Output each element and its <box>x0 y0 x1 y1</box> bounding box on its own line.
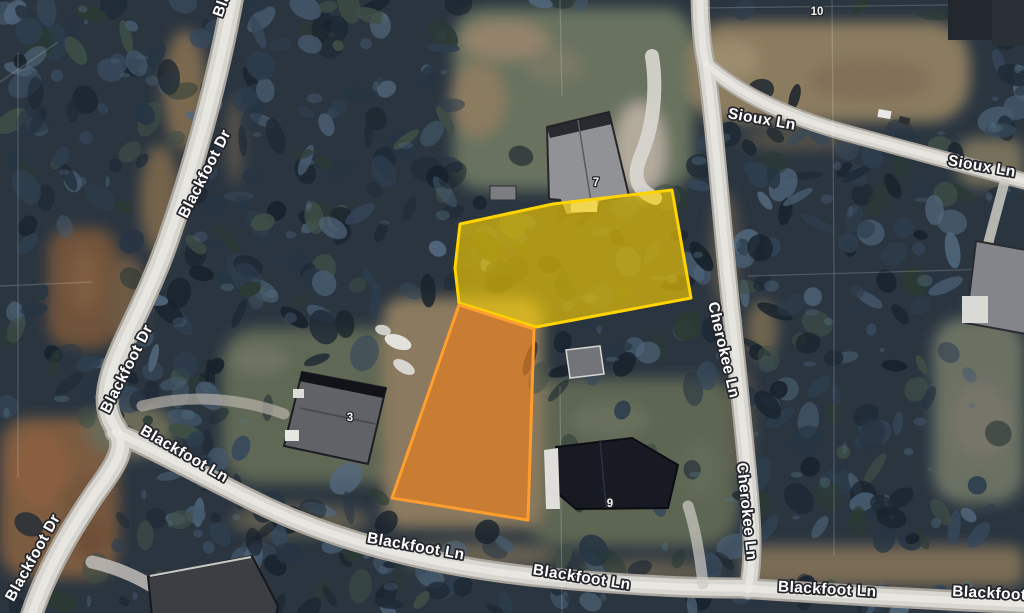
building-top-right-structures <box>948 0 1024 46</box>
satellite-map[interactable]: Blackfoot Dr Blackfoot Dr Blackfoot Dr B… <box>0 0 1024 613</box>
house-number-9: 9 <box>607 498 613 510</box>
building-shed-9 <box>566 346 604 378</box>
building-house-3 <box>284 372 386 464</box>
lot-number-10: 10 <box>811 6 824 18</box>
building-shed-7 <box>490 186 516 200</box>
house-number-3: 3 <box>347 412 353 424</box>
house-number-7: 7 <box>593 177 599 189</box>
